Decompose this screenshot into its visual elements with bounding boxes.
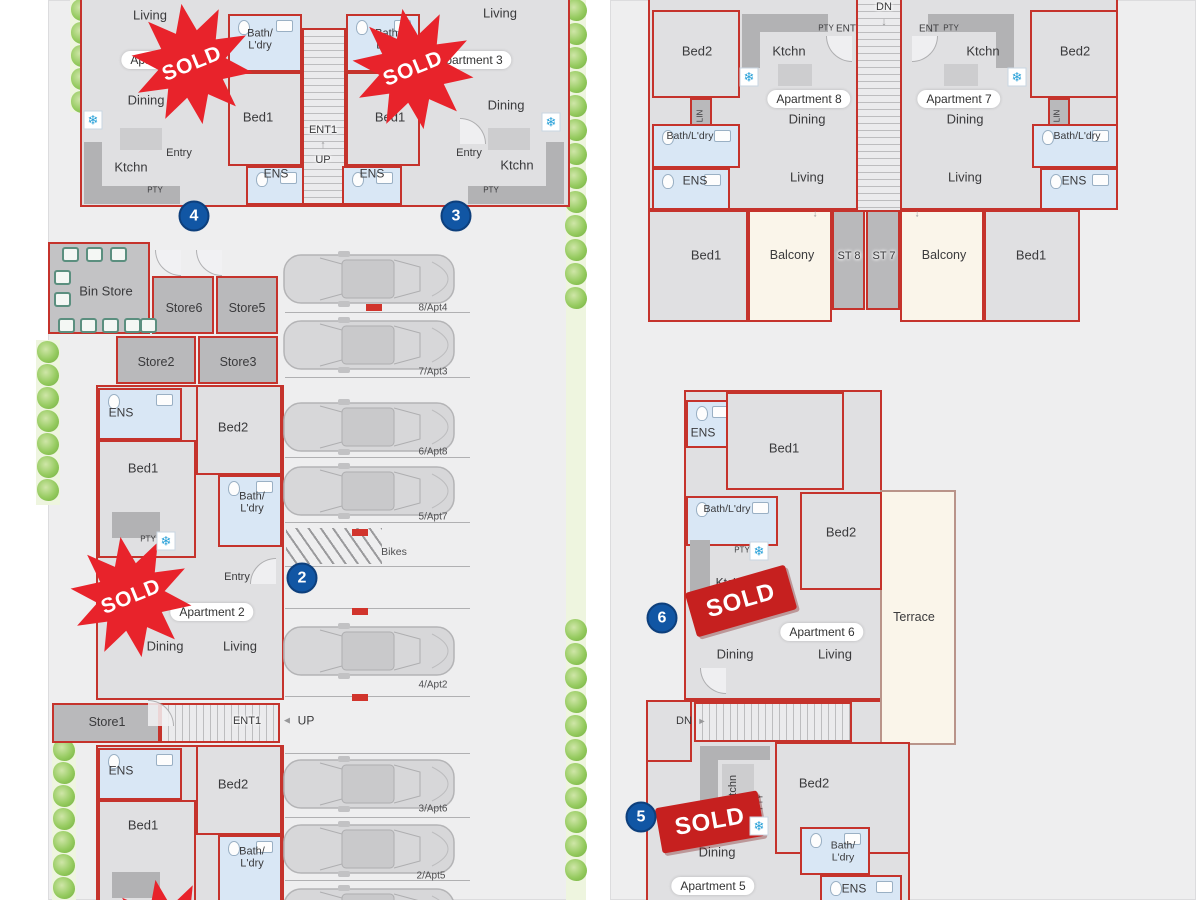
plan-label: ENT [919,23,939,34]
bin-icon [58,318,75,333]
plan-label: Store3 [220,355,257,369]
plan-label: Bath/ L'dry [247,28,273,53]
zone-apt3-counter-right [546,142,564,204]
unit-badge: 3 [441,201,472,232]
tree-icon [565,811,587,833]
plan-label: ENT1 [309,124,337,136]
car-icon [282,622,458,680]
basin-icon [752,502,769,514]
tree-icon [565,215,587,237]
room-apt6-bed2 [800,492,882,590]
plan-label: 4/Apt2 [419,679,448,690]
plan-label: Bed1 [128,462,158,477]
plan-label: DN [876,1,892,13]
threshold-marker [352,529,368,536]
basin-icon [876,881,893,893]
zone-apt8-counter-left [742,32,760,68]
zone-apt3-counter-bottom [468,186,546,204]
plan-label: Bed2 [826,526,856,541]
toilet-icon [696,406,708,421]
plan-label: ENS [109,406,134,419]
room-apt7-bed1 [984,210,1080,322]
ac-unit-icon: ❄ [750,817,769,836]
plan-label: Bed2 [218,421,248,436]
tree-icon [37,341,59,363]
car-icon [282,316,458,374]
ac-unit-icon: ❄ [750,542,769,561]
room-apt7-balcony [900,210,984,322]
plan-label: ST 8 [837,250,860,262]
plan-label: Living [948,171,982,186]
zone-apt4-island [120,128,162,150]
parking-line [285,696,470,697]
parking-line [285,608,470,609]
plan-label: ENS [691,426,716,439]
basin-icon [156,394,173,406]
bin-icon [110,247,127,262]
plan-label: Store1 [89,715,126,729]
room-stair-dn-top [856,0,902,212]
plan-label: Dining [128,94,165,109]
room-apt8-bed1 [648,210,748,322]
zone-apt3-island [488,128,530,150]
plan-label: Dining [147,640,184,655]
car-icon [282,884,458,900]
bin-icon [80,318,97,333]
ac-unit-icon: ❄ [157,532,176,551]
plan-label: Entry [224,571,250,583]
basin-icon [1092,174,1109,186]
plan-label: Bin Store [79,285,132,300]
threshold-marker [352,608,368,615]
tree-icon [565,619,587,641]
plan-label: UP [315,154,330,166]
apartment-pill: Apartment 8 [767,90,850,108]
plan-label: LIN [697,110,706,122]
room-stair-ent1-lower [160,703,280,743]
plan-label: Living [818,648,852,663]
zone-apt4-counter-bottom [102,186,180,204]
toilet-icon [662,174,674,189]
plan-label: ► [698,716,707,726]
plan-label: ↓ [881,16,887,28]
tree-icon [565,239,587,261]
apartment-pill: Apartment 6 [780,623,863,641]
plan-label: ENT1 [233,715,261,727]
plan-label: Ktchn [966,45,999,60]
plan-label: ↓ [813,208,818,219]
plan-label: 5/Apt7 [419,511,448,522]
plan-label: PTY [147,187,163,196]
unit-badge: 2 [287,563,318,594]
plan-label: Dining [717,648,754,663]
plan-label: ENS [109,764,134,777]
tree-icon [37,479,59,501]
zone-apt4-counter-left [84,142,102,204]
sold-star-text: SOLD [380,46,447,92]
plan-label: Bath/ L'dry [831,840,856,864]
plan-label: ENS [683,174,708,187]
plan-label: Terrace [893,610,935,624]
plan-label: Bath/ L'dry [239,846,265,871]
bin-icon [140,318,157,333]
plan-label: Bed1 [691,249,721,264]
toilet-icon [1050,174,1062,189]
plan-label: Living [223,640,257,655]
plan-label: 8/Apt4 [419,302,448,313]
ac-unit-icon: ❄ [740,68,759,87]
plan-label: Bed2 [799,777,829,792]
plan-label: ↑ [320,139,326,151]
ac-unit-icon: ❄ [84,111,103,130]
room-stair-ent1-up [302,28,346,205]
tree-icon [565,715,587,737]
plan-label: Bed2 [218,778,248,793]
bin-icon [124,318,141,333]
tree-icon [565,643,587,665]
plan-label: UP [298,714,315,727]
plan-label: Bikes [381,547,407,559]
tree-icon [53,808,75,830]
sold-banner-text: SOLD [673,802,747,842]
toilet-icon [356,20,368,35]
plan-label: LIN [1054,110,1063,122]
room-stair-dn-apt6 [694,702,852,742]
plan-label: PTY [140,536,156,545]
toilet-icon [810,833,822,848]
plan-label: ◄ [282,715,292,726]
car-icon [282,820,458,878]
plan-label: 2/Apt5 [417,870,446,881]
tree-icon [565,691,587,713]
ac-unit-icon: ❄ [542,113,561,132]
plan-label: Balcony [770,248,814,262]
plan-label: Dining [488,99,525,114]
plan-label: Bath/L'dry [667,131,714,143]
tree-icon [53,785,75,807]
plan-label: 3/Apt6 [419,803,448,814]
tree-icon [565,739,587,761]
plan-label: PTY [483,187,499,196]
tree-icon [37,456,59,478]
tree-icon [37,387,59,409]
plan-label: Store5 [229,301,266,315]
plan-label: Bed1 [243,111,273,126]
plan-label: ↓ [915,208,920,219]
plan-label: 6/Apt8 [419,446,448,457]
apartment-pill: Apartment 5 [671,877,754,895]
plan-label: Living [790,171,824,186]
room-apt8-balcony [748,210,832,322]
plan-label: ENS [264,167,289,180]
unit-badge: 5 [626,802,657,833]
plan-label: Bed2 [1060,45,1090,60]
plan-label: Bed1 [128,819,158,834]
basin-icon [276,20,293,32]
bin-icon [102,318,119,333]
plan-label: PTY [943,25,959,34]
plan-label: 7/Apt3 [419,366,448,377]
plan-label: Store2 [138,355,175,369]
plan-label: ENS [1062,174,1087,187]
unit-badge: 4 [179,201,210,232]
plan-label: Dining [947,113,984,128]
plan-label: ENS [842,882,867,895]
plan-label: Bath/L'dry [704,504,751,516]
sold-star-text: SOLD [98,574,165,620]
plan-label: Ktchn [500,159,533,174]
zone-apt8-counter-top [742,14,828,32]
plan-label: Entry [456,147,482,159]
sold-banner-text: SOLD [703,578,779,624]
tree-icon [37,364,59,386]
zone-apt5-counter-top [700,746,770,760]
toilet-icon [1042,130,1054,145]
tree-icon [37,410,59,432]
parking-line [285,817,470,818]
threshold-marker [352,694,368,701]
plan-label: ENT [836,23,856,34]
tree-icon [53,854,75,876]
plan-label: DN [676,715,692,727]
floorplan-canvas: LivingDiningKtchnEntryBed1Bath/ L'dryENS… [0,0,1200,900]
plan-label: Ktchn [114,161,147,176]
tree-icon [53,877,75,899]
ac-unit-icon: ❄ [1008,68,1027,87]
plan-label: Store6 [166,301,203,315]
tree-icon [565,859,587,881]
bin-icon [86,247,103,262]
plan-label: Balcony [922,248,966,262]
plan-label: Dining [789,113,826,128]
plan-label: Bed1 [1016,249,1046,264]
tree-icon [565,667,587,689]
tree-icon [53,831,75,853]
tree-icon [53,762,75,784]
plan-label: Living [483,7,517,22]
plan-label: Bath/ L'dry [239,491,265,516]
zone-apt7-counter-top [928,14,1014,32]
basin-icon [156,754,173,766]
toilet-icon [830,881,842,896]
zone-apt7-island [944,64,978,86]
tree-icon [565,287,587,309]
plan-label: PTY [818,25,834,34]
plan-label: Bed1 [769,442,799,457]
parking-line [285,753,470,754]
zone-apt8-island [778,64,812,86]
unit-badge: 6 [647,603,678,634]
tree-icon [565,835,587,857]
bin-icon [54,292,71,307]
plan-label: Bed2 [682,45,712,60]
plan-label: ENS [360,167,385,180]
tree-icon [37,433,59,455]
bin-icon [62,247,79,262]
room-apt5-room-nw [646,700,692,762]
plan-label: Dining [699,846,736,861]
plan-label: ST 7 [872,250,895,262]
zone-apt1-wardrobe [112,872,160,898]
tree-icon [565,763,587,785]
plan-label: PTY [734,547,750,556]
plan-label: Living [133,9,167,24]
plan-label: Ktchn [772,45,805,60]
bin-icon [54,270,71,285]
basin-icon [714,130,731,142]
plan-label: Bath/L'dry [1054,131,1101,143]
sold-star-text: SOLD [159,41,226,87]
tree-icon [565,263,587,285]
car-icon [282,250,458,308]
apartment-pill: Apartment 7 [917,90,1000,108]
tree-icon [565,787,587,809]
plan-label: Entry [166,147,192,159]
